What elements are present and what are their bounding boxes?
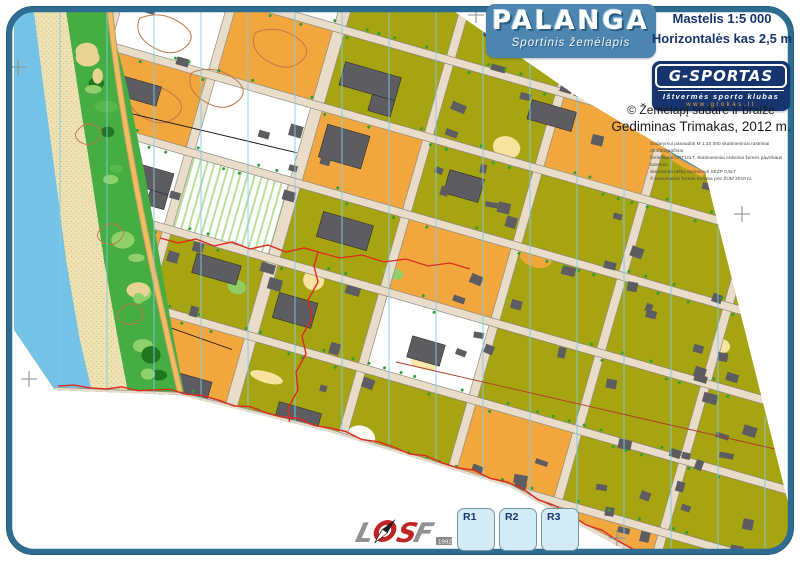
credits-block: © Žemėlapį sudarė ir braižė Gediminas Tr…	[606, 103, 796, 134]
map-title: PALANGA	[486, 6, 656, 37]
losf-year: 1992	[438, 540, 452, 546]
fine-print-line: © Nacionalinė žemės tarnyba prie ŽŪM 201…	[650, 177, 796, 184]
fine-print: Sudarymui panaudoti M 1:10 000 skaitmeni…	[650, 142, 796, 184]
map-title-banner: PALANGA Sportinis žemėlapis	[486, 4, 656, 58]
map-subtitle: Sportinis žemėlapis	[486, 37, 656, 49]
fine-print-line: skenavimo taškų duomenys SEŽP 0,5LT	[650, 170, 796, 177]
fine-print-line: žemėlapiai ORT10LT, skaitmeniniai erdvin…	[650, 156, 796, 170]
credits-line1: © Žemėlapį sudarė ir braižė	[606, 103, 796, 117]
federation-logo: L S F 1992	[348, 511, 454, 553]
scale-block: Mastelis 1:5 000 Horizontalės kas 2,5 m	[648, 9, 796, 48]
club-tagline: Ištvermės sporto klubas	[658, 90, 784, 101]
fine-print-line: Sudarymui panaudoti M 1:10 000 skaitmeni…	[650, 142, 796, 156]
result-boxes: R1 R2 R3	[457, 508, 579, 551]
contour-interval-text: Horizontalės kas 2,5 m	[648, 29, 796, 49]
result-box-r3: R3	[541, 508, 579, 551]
result-box-r1: R1	[457, 508, 495, 551]
club-name: G-SPORTAS	[655, 64, 787, 88]
result-box-r2: R2	[499, 508, 537, 551]
credits-line2: Gediminas Trimakas, 2012 m.	[606, 119, 796, 134]
losf-letter-l: L	[353, 518, 378, 549]
scale-text: Mastelis 1:5 000	[648, 9, 796, 29]
